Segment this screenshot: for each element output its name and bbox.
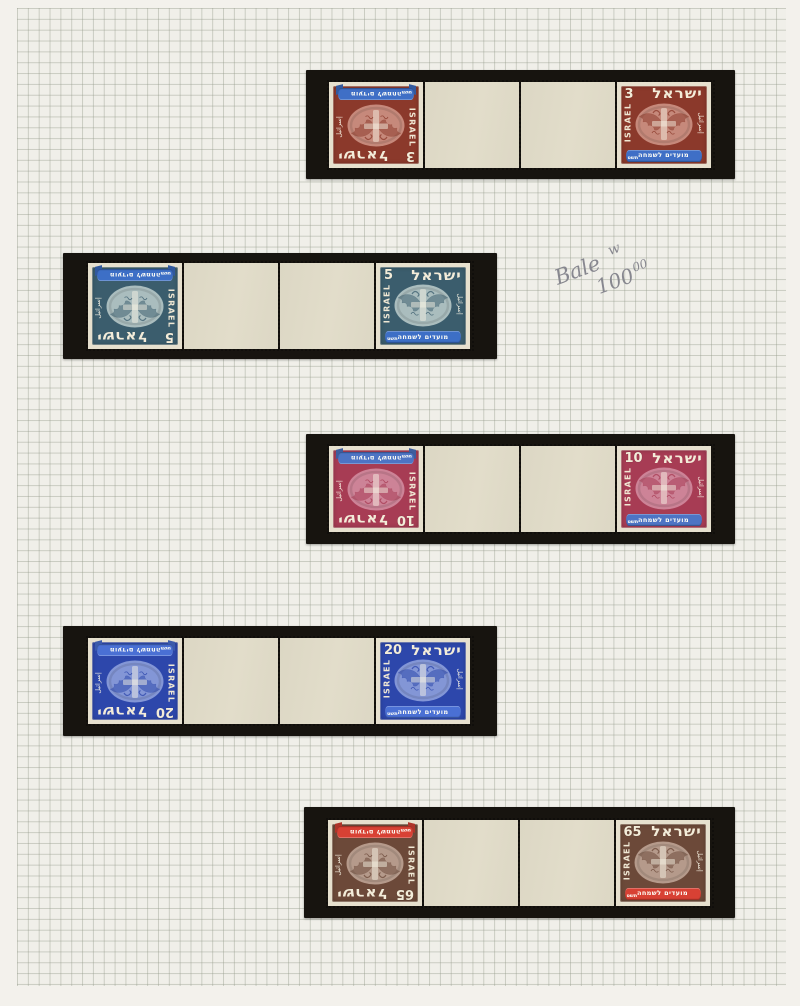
stamp-header: 65 ישראל: [624, 825, 702, 840]
country-name-hebrew: ישראל: [652, 87, 703, 101]
ribbon-text: מועדים לשמחה: [349, 828, 400, 835]
stamp-strip-mount-20: 20 ישראל ISRAEL إسرائيل תשט מועדים לשמחה: [63, 626, 497, 736]
country-name-latin: ISRAEL: [167, 281, 176, 337]
stamp-header: 3 ישראל: [625, 87, 703, 102]
stamp-3-inverted: 3 ישראל ISRAEL إسرائيل תשט מועדים לשמחה: [329, 82, 423, 168]
ribbon-banner: תשט מועדים לשמחה: [97, 269, 173, 281]
ribbon-banner: תשט מועדים לשמחה: [338, 88, 414, 100]
gutter-tab: [521, 446, 615, 532]
ribbon-year: תשט: [400, 827, 411, 832]
stamp-5-inverted: 5 ישראל ISRAEL إسرائيل תשט מועדים לשמחה: [88, 263, 182, 349]
ribbon-year: תשט: [401, 89, 412, 94]
ribbon-text: מועדים לשמחה: [350, 455, 401, 462]
ribbon-banner: תשט מועדים לשמחה: [385, 331, 461, 343]
country-name-hebrew: ישראל: [411, 269, 462, 283]
tete-beche-gutter-pair-5: 5 ישראל ISRAEL إسرائيل תשט מועדים לשמחה: [88, 263, 472, 349]
country-name-arabic: إسرائيل: [456, 279, 464, 329]
country-name-hebrew: ישראל: [337, 513, 388, 527]
stamp-65-inverted: 65 ישראל ISRAEL إسرائيل תשט מועדים לשמחה: [328, 820, 422, 906]
ribbon-text: מועדים לשמחה: [638, 517, 689, 524]
ribbon-banner: תשט מועדים לשמחה: [385, 706, 461, 718]
country-name-arabic: إسرائيل: [335, 102, 343, 152]
country-name-arabic: إسرائيل: [456, 654, 464, 704]
ribbon-text: מועדים לשמחה: [397, 709, 448, 716]
ribbon-banner: תשט מועדים לשמחה: [338, 452, 414, 464]
stamp-print: 3 ישראל ISRAEL إسرائيل תשט מועדים לשמחה: [621, 86, 707, 164]
ribbon-banner: תשט מועדים לשמחה: [626, 514, 702, 526]
gutter-tab: [280, 638, 374, 724]
ribbon-banner: תשט מועדים לשמחה: [337, 826, 413, 838]
stamp-print: 5 ישראל ISRAEL إسرائيل תשט מועדים לשמחה: [380, 267, 466, 345]
gutter-tab: [424, 820, 518, 906]
ribbon-year: תשט: [387, 337, 398, 342]
stamp-print: 20 ישראל ISRAEL إسرائيل תשט מועדים לשמחה: [380, 642, 466, 720]
ribbon-banner: תשט מועדים לשמחה: [625, 888, 701, 900]
country-name-arabic: إسرائيل: [696, 836, 704, 886]
country-name-arabic: إسرائيل: [94, 283, 102, 333]
stamp-header: 3 ישראל: [337, 148, 415, 163]
country-name-latin: ISRAEL: [623, 459, 632, 515]
stamp-strip-mount-3: 3 ישראל ISRAEL إسرائيل תשט מועדים לשמחה: [306, 70, 735, 179]
gutter-tab: [520, 820, 614, 906]
ribbon-year: תשט: [627, 894, 638, 899]
ribbon-banner: תשט מועדים לשמחה: [97, 644, 173, 656]
ribbon-text: מועדים לשמחה: [109, 647, 160, 654]
tete-beche-gutter-pair-20: 20 ישראל ISRAEL إسرائيل תשט מועדים לשמחה: [88, 638, 472, 724]
stamp-10-upright: 10 ישראל ISRAEL إسرائيل תשט מועדים לשמחה: [617, 446, 711, 532]
flying-scroll-motif: [634, 466, 694, 511]
flying-scroll-motif: [105, 284, 165, 329]
flying-scroll-motif: [346, 103, 406, 148]
flying-scroll-motif: [105, 659, 165, 704]
ribbon-year: תשט: [387, 712, 398, 717]
ribbon-text: מועדים לשמחה: [397, 334, 448, 341]
gutter-tab: [184, 263, 278, 349]
ribbon-text: מועדים לשמחה: [109, 272, 160, 279]
stamp-strip-mount-65: 65 ישראל ISRAEL إسرائيل תשט מועדים לשמחה: [304, 807, 735, 918]
stamp-header: 65 ישראל: [336, 886, 414, 901]
stamp-print: 10 ישראל ISRAEL إسرائيل תשט מועדים לשמחה: [333, 450, 419, 528]
stamp-header: 10 ישראל: [625, 451, 703, 466]
gutter-tab: [521, 82, 615, 168]
stamp-header: 20 ישראל: [96, 704, 174, 719]
ribbon-text: מועדים לשמחה: [637, 890, 688, 897]
stamp-header: 5 ישראל: [96, 329, 174, 344]
ribbon-year: תשט: [160, 270, 171, 275]
country-name-latin: ISRAEL: [622, 832, 631, 888]
country-name-latin: ISRAEL: [623, 94, 632, 150]
country-name-arabic: إسرائيل: [697, 462, 705, 512]
country-name-arabic: إسرائيل: [334, 840, 342, 890]
stamp-print: 65 ישראל ISRAEL إسرائيل תשט מועדים לשמחה: [332, 824, 418, 902]
stamp-print: 20 ישראל ISRAEL إسرائيل תשט מועדים לשמחה: [92, 642, 178, 720]
country-name-hebrew: ישראל: [411, 644, 462, 658]
flying-scroll-motif: [345, 841, 405, 886]
ribbon-year: תשט: [160, 645, 171, 650]
gutter-tab: [425, 82, 519, 168]
stamp-10-inverted: 10 ישראל ISRAEL إسرائيل תשט מועדים לשמחה: [329, 446, 423, 532]
stamp-print: 65 ישראל ISRAEL إسرائيل תשט מועדים לשמחה: [620, 824, 706, 902]
country-name-arabic: إسرائيل: [697, 98, 705, 148]
country-name-hebrew: ישראל: [336, 886, 387, 900]
ribbon-text: מועדים לשמחה: [638, 152, 689, 159]
stamp-65-upright: 65 ישראל ISRAEL إسرائيل תשט מועדים לשמחה: [616, 820, 710, 906]
flying-scroll-motif: [634, 102, 694, 147]
country-name-latin: ISRAEL: [407, 464, 416, 520]
stamp-20-inverted: 20 ישראל ISRAEL إسرائيل תשט מועדים לשמחה: [88, 638, 182, 724]
stamp-header: 10 ישראל: [337, 512, 415, 527]
flying-scroll-motif: [393, 658, 453, 703]
country-name-arabic: إسرائيل: [94, 658, 102, 708]
flying-scroll-motif: [346, 467, 406, 512]
stamp-print: 5 ישראל ISRAEL إسرائيل תשט מועדים לשמחה: [92, 267, 178, 345]
country-name-hebrew: ישראל: [652, 452, 703, 466]
ribbon-year: תשט: [401, 453, 412, 458]
tete-beche-gutter-pair-65: 65 ישראל ISRAEL إسرائيل תשט מועדים לשמחה: [328, 820, 712, 906]
country-name-latin: ISRAEL: [167, 656, 176, 712]
gutter-tab: [280, 263, 374, 349]
country-name-latin: ISRAEL: [383, 276, 392, 332]
stamp-20-upright: 20 ישראל ISRAEL إسرائيل תשט מועדים לשמחה: [376, 638, 470, 724]
ribbon-banner: תשט מועדים לשמחה: [626, 150, 702, 162]
tete-beche-gutter-pair-3: 3 ישראל ISRAEL إسرائيل תשט מועדים לשמחה: [329, 82, 713, 168]
stamp-header: 5 ישראל: [384, 268, 462, 283]
country-name-latin: ISRAEL: [383, 651, 392, 707]
ribbon-text: מועדים לשמחה: [350, 90, 401, 97]
stamp-print: 3 ישראל ISRAEL إسرائيل תשט מועדים לשמחה: [333, 86, 419, 164]
country-name-hebrew: ישראל: [651, 825, 702, 839]
country-name-arabic: إسرائيل: [335, 466, 343, 516]
country-name-hebrew: ישראל: [337, 148, 388, 162]
note-sup: w: [606, 240, 623, 259]
tete-beche-gutter-pair-10: 10 ישראל ISRAEL إسرائيل תשט מועדים לשמחה: [329, 446, 713, 532]
country-name-hebrew: ישראל: [96, 705, 147, 719]
stamp-strip-mount-10: 10 ישראל ISRAEL إسرائيل תשט מועדים לשמחה: [306, 434, 735, 544]
gutter-tab: [184, 638, 278, 724]
flying-scroll-motif: [633, 840, 693, 885]
stamp-3-upright: 3 ישראל ISRAEL إسرائيل תשט מועדים לשמחה: [617, 82, 711, 168]
stamp-print: 10 ישראל ISRAEL إسرائيل תשט מועדים לשמחה: [621, 450, 707, 528]
ribbon-year: תשט: [628, 520, 639, 525]
country-name-latin: ISRAEL: [406, 837, 415, 893]
stamp-5-upright: 5 ישראל ISRAEL إسرائيل תשט מועדים לשמחה: [376, 263, 470, 349]
country-name-latin: ISRAEL: [407, 99, 416, 155]
stamp-strip-mount-5: 5 ישראל ISRAEL إسرائيل תשט מועדים לשמחה: [63, 253, 497, 359]
stamp-album-page: 3 ישראל ISRAEL إسرائيل תשט מועדים לשמחה: [0, 0, 800, 1006]
stamp-header: 20 ישראל: [384, 643, 462, 658]
flying-scroll-motif: [393, 283, 453, 328]
gutter-tab: [425, 446, 519, 532]
country-name-hebrew: ישראל: [96, 330, 147, 344]
ribbon-year: תשט: [628, 156, 639, 161]
